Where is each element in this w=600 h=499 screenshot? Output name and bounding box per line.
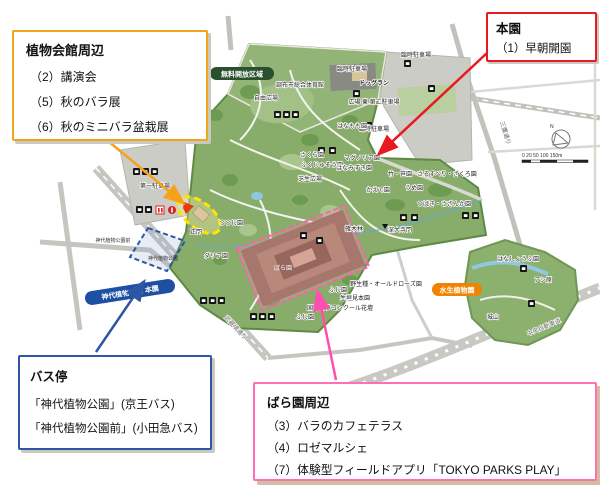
scale-bar: 0 20 50 100 150m [522,153,588,163]
pond [251,192,263,200]
label-lawn-plaza: 芝生広場 [298,175,322,183]
label-sakura: さくら園 [300,152,324,159]
label-fuji-a: ふじ園 [329,287,347,294]
label-dog-run: ドッグラン [359,79,389,87]
information-icon [168,206,176,214]
label-tsubaki: つばき・さざんか園 [417,200,471,208]
label-ashihara: アシ原 [534,277,552,284]
label-zokibayashi: 雑木林 [345,225,363,233]
label-main-gate: 正門 [190,229,202,236]
label-magnolia: マグノリア園 [344,154,380,162]
label-busstop-mae: 神代植物公園前 [95,237,130,244]
label-hanamomo: はなもも園 [337,123,367,130]
label-ikegaki: 生垣見本園 [340,294,370,302]
rose-callout-item: （3）バラのカフェテラス [267,415,587,437]
rose-callout-title: ばら園周辺 [267,392,587,411]
label-dahlia: ダリア園 [204,252,228,260]
hall-callout-title: 植物会館周辺 [26,40,198,59]
label-road-mitaka: 三鷹通り [498,120,513,145]
bus-callout-title: バス停 [30,366,204,385]
label-jindaiji-gate: 深大寺門 [388,226,412,234]
label-free-plaza: 自由広場 [254,94,278,102]
label-gym: 調布市総合体育館 [276,81,324,89]
hall-callout: 植物会館周辺 （2）講演会 （5）秋のバラ展 （6）秋のミニバラ盆栽展 [12,30,208,141]
rose-callout-item: （4）ロゼマルシェ [267,437,587,459]
aquatic-pill: 水生植物園 [432,283,482,296]
label-ume: うめ園 [405,185,423,192]
label-temp-parking-a: 臨時駐車場 [401,51,431,59]
bus-callout-item: 「神代植物公園」(京王バス) [29,393,204,417]
aquatic-garden [465,240,578,345]
bus-callout: バス停 「神代植物公園」(京王バス) 「神代植物公園前」(小田急バス) [18,355,212,450]
label-busstop-jindai: 神代植物公園 [148,255,178,262]
free-zone-label: 無料開放区域 [221,70,263,79]
label-rose-garden: ばら園 [274,264,292,272]
free-zone-pill: 無料開放区域 [210,67,274,80]
main-garden-callout: 本園 （1）早朝開園 [486,12,597,62]
label-kaede: かえで園 [366,187,390,194]
label-shiroyama: 城山 [487,313,499,321]
hall-callout-item: （5）秋のバラ展 [30,90,198,115]
main-garden-callout-item: （1）早朝開園 [496,40,589,56]
label-fuji-b: ふじ園 [296,314,314,321]
label-hanamizuki: はなみずき園 [336,164,372,172]
park-map-page: 無料開放区域 水生植物園 神代植物公園 本園 調布市総合体育館 自由広場 臨時駐… [0,0,600,499]
label-rose-concours: 国際バラコンクール花壇 [307,304,373,312]
label-temp-parking-b: 臨時駐車場 [337,65,367,73]
hall-callout-item: （2）講演会 [30,65,198,90]
compass-rose: N [550,124,570,148]
rose-callout-item: （7）体験型フィールドアプリ「TOKYO PARKS PLAY」 [267,459,587,481]
label-hanashobu: はなしょうぶ園 [497,256,539,263]
label-plaza-east-p2: 広場 東 第二駐車場 [348,98,399,106]
scale-label: 0 20 50 100 150m [522,153,562,159]
restaurant-icon [156,206,164,214]
rose-callout: ばら園周辺 （3）バラのカフェテラス （4）ロゼマルシェ （7）体験型フィールド… [253,382,597,481]
main-garden-callout-title: 本園 [496,18,589,37]
label-wild-rose: 野生種・オールドローズ園 [350,280,422,288]
hall-callout-item: （6）秋のミニバラ盆栽展 [30,115,198,140]
label-sarusuberi: さるすべり・ざくろ園 [417,170,477,178]
aquatic-label: 水生植物園 [440,286,475,295]
label-take-sasa: 竹・笹園 [388,170,412,178]
compass-n-label: N [550,124,554,130]
label-tsutsuji: つつじ園 [219,220,243,227]
bus-callout-item: 「神代植物公園前」(小田急バス) [29,417,204,441]
